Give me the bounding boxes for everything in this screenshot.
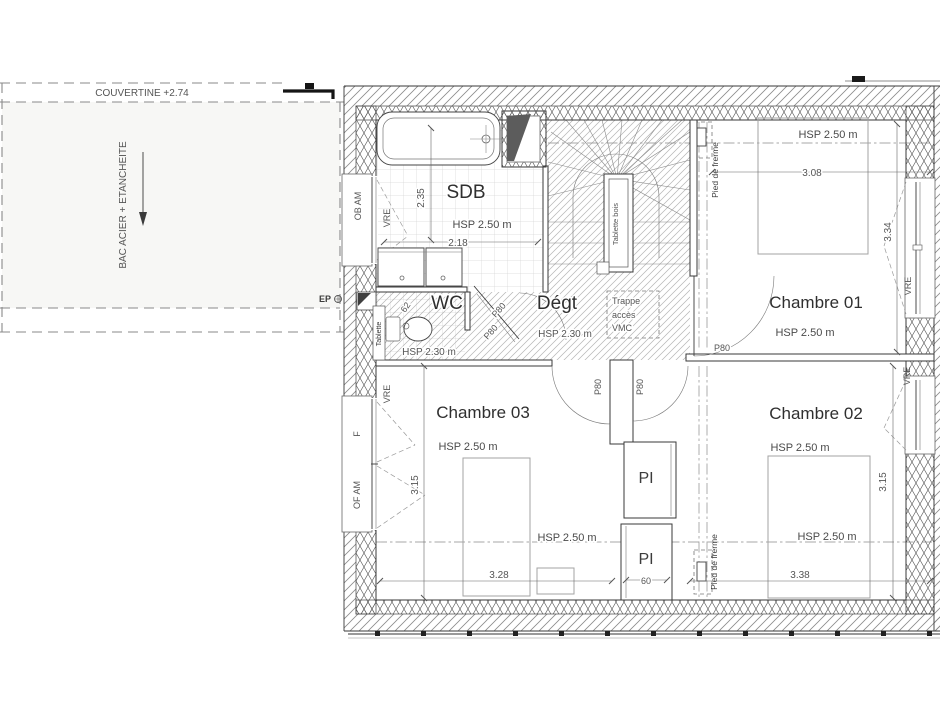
ch02-hsp-bottom: HSP 2.50 m bbox=[797, 531, 856, 543]
sdb-hsp: HSP 2.50 m bbox=[452, 219, 511, 231]
window-ch01-vre-label: VRE bbox=[903, 277, 913, 296]
closet-lower-label: PI bbox=[638, 551, 653, 568]
couvertine-flashing bbox=[283, 83, 333, 99]
downspout-label: EP bbox=[319, 294, 331, 304]
dim-ch03-depth: 3.15 bbox=[410, 475, 421, 495]
wall-stairs-ch01 bbox=[690, 120, 697, 276]
wall-degt-ch03 bbox=[376, 360, 552, 366]
dim-ch02-width: 3.38 bbox=[790, 570, 810, 581]
wall-sdb-wc bbox=[376, 287, 467, 292]
window-obam-label: OB AM bbox=[353, 192, 363, 221]
wall-sdb-stairs bbox=[543, 166, 548, 292]
truss-label-top: Pied de frerme bbox=[710, 142, 720, 198]
eave-band-top bbox=[344, 86, 940, 106]
vanity-basins bbox=[378, 248, 462, 286]
ch03-hsp-top: HSP 2.50 m bbox=[438, 441, 497, 453]
window-ch02-vre-label: VRE bbox=[902, 367, 912, 386]
ch02-name: Chambre 02 bbox=[769, 404, 863, 423]
stair-shelf-label: Tablette bois bbox=[611, 203, 620, 245]
wc-shelf: Tablette bbox=[373, 306, 385, 360]
door-ch02-label: P80 bbox=[635, 379, 645, 395]
door-ch03-label: P80 bbox=[593, 379, 603, 395]
stair-core-foot bbox=[597, 262, 609, 274]
ch03-hsp-bottom: HSP 2.50 m bbox=[537, 532, 596, 544]
couvertine-label: COUVERTINE +2.74 bbox=[95, 88, 189, 99]
cladding-rail bbox=[348, 631, 940, 638]
window-ch02-vre: VRE bbox=[884, 367, 935, 454]
insulation-bottom bbox=[356, 600, 934, 614]
door-stub-wall bbox=[610, 360, 633, 444]
roof-membrane-label: BAC ACIER + ETANCHEITE bbox=[118, 141, 129, 269]
ch01-name: Chambre 01 bbox=[769, 293, 863, 312]
window-f-label: F bbox=[352, 431, 362, 437]
ch02-hsp-top: HSP 2.50 m bbox=[770, 442, 829, 454]
sdb-name: SDB bbox=[446, 182, 485, 203]
wall-wc-degt bbox=[465, 292, 470, 330]
closet-width-dim: 60 bbox=[641, 576, 651, 586]
bathtub bbox=[377, 112, 502, 165]
eave-band-right bbox=[934, 86, 940, 631]
roof-surface bbox=[2, 102, 340, 308]
degt-name: Dégt bbox=[537, 293, 578, 314]
door-ch01-label: P80 bbox=[714, 343, 730, 353]
door-chambre02: P80 bbox=[633, 366, 688, 421]
window-ofam-label: OF AM bbox=[352, 481, 362, 509]
downspout-symbol: EP bbox=[319, 294, 342, 304]
dim-ch01-depth: 3.34 bbox=[883, 222, 894, 242]
dim-sdb-width: 2.18 bbox=[448, 238, 468, 249]
window-ch03-vre: VRE bbox=[382, 385, 392, 404]
closets: PI PI 60 bbox=[621, 442, 676, 600]
duct-shaft bbox=[502, 111, 546, 167]
dim-sdb-depth: 2.35 bbox=[416, 188, 427, 208]
attic-hatch-line3: VMC bbox=[612, 323, 633, 333]
window-ch03-f-ofam: F OF AM VRE bbox=[342, 385, 425, 532]
degt-hsp: HSP 2.30 m bbox=[538, 329, 592, 340]
wc-shelf-label: Tablette bbox=[376, 322, 383, 347]
truss-post-top bbox=[697, 128, 706, 146]
attic-hatch-line2: accès bbox=[612, 310, 636, 320]
gutter-bracket bbox=[852, 76, 865, 82]
wall-ch01-ch02 bbox=[686, 354, 934, 361]
ch01-hsp-mid: HSP 2.50 m bbox=[775, 327, 834, 339]
toilet bbox=[386, 317, 432, 341]
eave-band-bottom bbox=[344, 614, 940, 631]
door-chambre01: P80 bbox=[694, 276, 774, 356]
truss-label-bottom: Pied de frerme bbox=[709, 534, 719, 590]
floor-plan: COUVERTINE +2.74 BAC ACIER + ETANCHEITE … bbox=[0, 0, 940, 705]
dim-ch01-width: 3.08 bbox=[802, 168, 822, 179]
wc-name: WC bbox=[431, 293, 463, 314]
wc-hsp: HSP 2.30 m bbox=[402, 347, 456, 358]
window-obam-vre: VRE bbox=[382, 209, 392, 228]
truss-post-bottom bbox=[697, 562, 706, 581]
dim-ch02-depth: 3.15 bbox=[878, 472, 889, 492]
ch01-hsp-top: HSP 2.50 m bbox=[798, 129, 857, 141]
ch03-name: Chambre 03 bbox=[436, 403, 530, 422]
attic-hatch-line1: Trappe bbox=[612, 296, 640, 306]
dim-ch03-width: 3.28 bbox=[489, 570, 509, 581]
door-chambre03: P80 bbox=[552, 366, 610, 424]
closet-upper-label: PI bbox=[638, 470, 653, 487]
bed-chambre02 bbox=[768, 456, 870, 598]
window-ch01-vre: VRE bbox=[884, 178, 935, 318]
